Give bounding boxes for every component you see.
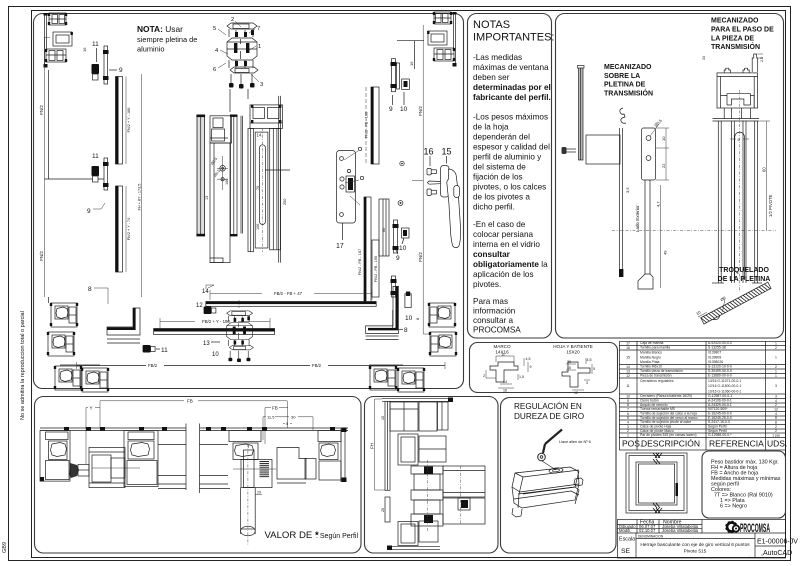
svg-text:33: 33: [702, 56, 706, 60]
svg-text:-En el caso de: -En el caso de: [473, 220, 526, 229]
svg-text:70: 70: [256, 186, 260, 190]
svg-text:10: 10: [400, 106, 408, 113]
svg-text:aplicación de los: aplicación de los: [473, 270, 534, 279]
svg-text:250: 250: [283, 199, 287, 205]
svg-text:12: 12: [196, 303, 203, 309]
svg-text:-Las medidas: -Las medidas: [473, 53, 522, 62]
svg-text:17: 17: [626, 341, 630, 345]
svg-text:PLETINA DE: PLETINA DE: [604, 82, 646, 89]
svg-text:-Los pesos máximos: -Los pesos máximos: [473, 113, 548, 122]
svg-text:PROCOMSA: PROCOMSA: [740, 523, 770, 535]
svg-text:3: 3: [775, 384, 777, 388]
svg-text:11: 11: [501, 353, 505, 357]
svg-text:UDS.: UDS.: [767, 439, 787, 449]
svg-text:deben ser: deben ser: [473, 73, 510, 82]
svg-text:10: 10: [661, 136, 666, 141]
svg-text:DE LA PLETINA: DE LA PLETINA: [718, 276, 771, 283]
svg-text:9: 9: [87, 208, 91, 215]
svg-text:Modifi.: Modifi.: [619, 528, 631, 533]
svg-text:2: 2: [775, 346, 777, 350]
svg-text:S-13255-38: S-13255-38: [708, 346, 726, 350]
svg-text:FN/2 + Y - 74: FN/2 + Y - 74: [127, 218, 131, 241]
svg-text:Manilla Plata: Manilla Plata: [640, 360, 660, 364]
svg-text:8: 8: [775, 420, 777, 424]
svg-text:,AutoCAD: ,AutoCAD: [761, 550, 792, 557]
svg-text:11: 11: [92, 153, 99, 160]
svg-text:11: 11: [626, 384, 630, 388]
svg-text:REGULACIÓN EN: REGULACIÓN EN: [514, 401, 582, 411]
svg-text:007120-500*: 007120-500*: [708, 407, 728, 411]
svg-text:1: 1: [775, 355, 777, 359]
svg-text:Para mas: Para mas: [473, 297, 508, 306]
svg-text:determinadas por el: determinadas por el: [473, 83, 551, 92]
svg-text:.: .: [749, 552, 750, 557]
svg-text:dependerán del: dependerán del: [473, 133, 530, 142]
svg-text:15: 15: [567, 366, 571, 370]
svg-text:Manilla Negro: Manilla Negro: [640, 355, 661, 359]
svg-text:de la hoja: de la hoja: [473, 123, 509, 132]
svg-text:POS.: POS.: [622, 439, 642, 449]
svg-text:2: 2: [775, 365, 777, 369]
svg-text:15: 15: [442, 147, 452, 157]
svg-text:2,5: 2,5: [760, 57, 764, 62]
svg-text:49: 49: [663, 250, 668, 255]
svg-text:Lado Exterior: Lado Exterior: [635, 205, 640, 232]
svg-text:0139807: 0139807: [708, 351, 721, 355]
svg-text:3: 3: [586, 381, 588, 385]
svg-text:Cerradero (Ranura batiente 16/: Cerradero (Ranura batiente 16/20): [640, 394, 692, 398]
svg-text:4,5: 4,5: [587, 358, 592, 362]
svg-text:6: 6: [213, 67, 216, 73]
svg-text:13: 13: [205, 196, 209, 200]
svg-text:2: 2: [483, 374, 485, 378]
svg-text:10: 10: [399, 245, 407, 252]
svg-text:pivotes.: pivotes.: [473, 280, 501, 289]
svg-text:del sistema de: del sistema de: [473, 163, 526, 172]
svg-text:MECANIZADO: MECANIZADO: [604, 64, 652, 71]
svg-text:8: 8: [88, 286, 92, 293]
svg-text:9: 9: [119, 67, 123, 74]
svg-text:60: 60: [382, 228, 386, 232]
svg-text:DUREZA DE GIRO: DUREZA DE GIRO: [514, 412, 584, 421]
svg-text:2: 2: [231, 17, 234, 23]
svg-text:14: 14: [257, 133, 262, 138]
svg-text:29: 29: [257, 491, 261, 495]
svg-text:10: 10: [626, 394, 630, 398]
svg-text:FB/2: FB/2: [312, 363, 322, 368]
svg-text:obligatoriamente la: obligatoriamente la: [473, 260, 548, 269]
svg-text:SOBRE LA: SOBRE LA: [604, 73, 640, 80]
svg-text:MARCO: MARCO: [493, 344, 511, 349]
svg-text:10: 10: [405, 315, 413, 322]
svg-text:interna en el vidrio: interna en el vidrio: [473, 240, 540, 249]
svg-text:16: 16: [82, 47, 87, 52]
svg-text:14/16 G-11071-00-0-1: 14/16 G-11071-00-0-1: [708, 379, 741, 383]
svg-text:FB/2: FB/2: [148, 363, 158, 368]
svg-text:5: 5: [593, 367, 595, 371]
svg-text:6 => Negro: 6 => Negro: [720, 504, 747, 510]
svg-text:12: 12: [626, 374, 630, 378]
svg-text:siempre pletina de: siempre pletina de: [137, 35, 197, 44]
svg-text:60: 60: [761, 167, 766, 172]
svg-text:Herraje basculante con eje de: Herraje basculante con eje de giro verti…: [640, 542, 750, 548]
svg-text:15: 15: [381, 416, 385, 420]
svg-text:Llave allen de Nº 6: Llave allen de Nº 6: [559, 440, 591, 444]
svg-text:: Según Perfil: : Según Perfil: [316, 533, 358, 540]
svg-text:pivotes, o los calces: pivotes, o los calces: [473, 183, 546, 192]
svg-text:3: 3: [260, 82, 263, 88]
svg-text:fijación de los: fijación de los: [473, 173, 523, 182]
svg-text:G-12988-00-0-*: G-12988-00-0-*: [708, 433, 732, 437]
svg-text:FN/2 - FB - 166: FN/2 - FB - 166: [365, 112, 369, 138]
svg-text:22: 22: [661, 163, 666, 168]
svg-text:14: 14: [202, 289, 209, 295]
svg-text:16: 16: [503, 389, 507, 393]
svg-text:SE: SE: [621, 548, 631, 555]
svg-text:FH + 8Y - 173,5: FH + 8Y - 173,5: [138, 184, 142, 211]
svg-text:No se admitira la reproduccion: No se admitira la reproduccion total o p…: [20, 311, 26, 420]
svg-text:A-92420-00-0-0: A-92420-00-0-0: [708, 341, 732, 345]
svg-text:fabricante del perfil.: fabricante del perfil.: [473, 93, 551, 102]
svg-text:NOTA: Usar: NOTA: Usar: [137, 24, 183, 34]
svg-text:TRANSMISIÓN: TRANSMISIÓN: [604, 88, 653, 97]
svg-text:máximas de ventana: máximas de ventana: [473, 63, 549, 72]
svg-text:10: 10: [212, 352, 219, 358]
svg-text:S-13120-10-0-0: S-13120-10-0-0: [708, 365, 732, 369]
svg-text:colocar persiana: colocar persiana: [473, 230, 534, 239]
svg-text:5: 5: [213, 26, 216, 32]
svg-text:20: 20: [381, 508, 385, 512]
svg-text:LA PIEZA DE: LA PIEZA DE: [711, 35, 754, 42]
svg-text:1: 1: [627, 433, 629, 437]
svg-text:1 par: 1 par: [772, 433, 781, 437]
svg-text:12/16 G-11800-00-0-1: 12/16 G-11800-00-0-1: [708, 384, 741, 388]
svg-text:FB: FB: [187, 399, 193, 404]
svg-text:106: 106: [225, 179, 229, 185]
svg-text:perfil de aluminio y: perfil de aluminio y: [473, 153, 542, 162]
svg-text:20: 20: [567, 360, 571, 364]
svg-text:9: 9: [389, 106, 393, 113]
svg-text:16: 16: [424, 147, 434, 157]
svg-text:dicho perfil.: dicho perfil.: [473, 203, 515, 212]
svg-text:S-2417-16-0-0: S-2417-16-0-0: [708, 420, 730, 424]
svg-text:1: 1: [258, 44, 261, 50]
svg-text:Y: Y: [90, 405, 93, 410]
svg-text:Caja de manilla: Caja de manilla: [640, 341, 663, 345]
svg-text:espesor y calidad del: espesor y calidad del: [473, 143, 550, 152]
svg-text:15: 15: [626, 355, 630, 359]
svg-text:Pivote 515: Pivote 515: [684, 549, 707, 555]
svg-text:10/16 G-11060-00-0-1: 10/16 G-11060-00-0-1: [708, 390, 741, 394]
svg-text:1: 1: [775, 369, 777, 373]
svg-text:Tornillo de sujeción pivote al: Tornillo de sujeción pivote al calce: [640, 420, 691, 424]
svg-text:HOJA Y BATIENTE: HOJA Y BATIENTE: [553, 344, 593, 349]
svg-text:FN/2 - FB - 167: FN/2 - FB - 167: [358, 249, 362, 275]
svg-text:8: 8: [404, 327, 408, 334]
svg-text:4,5: 4,5: [526, 357, 531, 361]
svg-text:PROCOMSA: PROCOMSA: [473, 326, 521, 335]
svg-text:FB: FB: [272, 405, 278, 410]
svg-text:Tuerca remachable M5: Tuerca remachable M5: [640, 407, 675, 411]
svg-text:16: 16: [409, 61, 414, 66]
svg-text:TRANSMISIÓN: TRANSMISIÓN: [711, 42, 760, 51]
svg-text:aluminio: aluminio: [137, 45, 165, 54]
svg-text:9: 9: [738, 138, 740, 142]
svg-text:PARA EL PASO DE: PARA EL PASO DE: [711, 26, 774, 33]
svg-text:Manilla Blanco: Manilla Blanco: [640, 351, 662, 355]
svg-text:9: 9: [530, 365, 532, 369]
svg-text:17: 17: [336, 243, 344, 250]
svg-text:30: 30: [291, 414, 296, 419]
svg-text:1/2 PIVOTE: 1/2 PIVOTE: [768, 194, 773, 217]
svg-text:11: 11: [161, 347, 168, 354]
svg-text:REFERENCIA: REFERENCIA: [709, 439, 764, 449]
svg-text:13: 13: [203, 341, 210, 347]
svg-text:información: información: [473, 307, 516, 316]
svg-text:02.10.07: 02.10.07: [639, 528, 656, 533]
svg-text:3: 3: [775, 394, 777, 398]
svg-text:1: 1: [775, 374, 777, 378]
svg-text:VALOR DE *: VALOR DE *: [265, 530, 319, 541]
svg-text:Par de pivotes 515 (en camas./: Par de pivotes 515 (en camas./acero): [640, 433, 697, 437]
svg-text:14: 14: [626, 365, 630, 369]
svg-text:MECANIZADO: MECANIZADO: [711, 18, 759, 25]
svg-text:IMPORTANTES:: IMPORTANTES:: [473, 32, 555, 44]
svg-text:DENOMINACION: DENOMINACION: [638, 535, 664, 539]
svg-text:3,5: 3,5: [625, 187, 630, 193]
svg-text:14: 14: [503, 380, 507, 384]
svg-text:E-13889-00-0-0: E-13889-00-0-0: [708, 374, 732, 378]
svg-text:11,5: 11,5: [267, 414, 275, 419]
svg-text:11: 11: [92, 41, 99, 48]
svg-text:S-30459-00-0-0: S-30459-00-0-0: [708, 369, 732, 373]
svg-text:FN/2: FN/2: [39, 251, 44, 261]
svg-text:Cerraderos regulables: Cerraderos regulables: [640, 379, 674, 383]
svg-text:Joseba Villatabeitia: Joseba Villatabeitia: [662, 528, 699, 533]
svg-text:4,7: 4,7: [656, 201, 661, 207]
svg-text:Tornillo M6x10: Tornillo M6x10: [640, 365, 662, 369]
svg-text:consultar: consultar: [473, 250, 511, 259]
svg-text:7: 7: [257, 26, 260, 32]
svg-text:12: 12: [574, 391, 578, 395]
svg-text:106: 106: [256, 224, 260, 230]
svg-text:Tornillo pieza de transmisión: Tornillo pieza de transmisión: [640, 369, 683, 373]
svg-text:0139808: 0139808: [708, 355, 721, 359]
svg-text:de los pivotes a: de los pivotes a: [473, 193, 530, 202]
svg-text:DESCRIPCIÓN: DESCRIPCIÓN: [641, 439, 700, 449]
svg-text:FN/2 - FB - 190: FN/2 - FB - 190: [374, 256, 378, 282]
svg-text:7: 7: [627, 407, 629, 411]
svg-text:1,5: 1,5: [519, 375, 524, 379]
svg-text:1: 1: [775, 341, 777, 345]
svg-text:FB/2 + Y - 190: FB/2 + Y - 190: [202, 319, 230, 324]
svg-text:FN/2: FN/2: [39, 105, 44, 115]
svg-text:G-12987-00-0-1: G-12987-00-0-1: [708, 394, 732, 398]
svg-text:12: 12: [774, 407, 778, 411]
svg-text:15X20: 15X20: [566, 350, 580, 355]
svg-text:FB/2 - FB + 47: FB/2 - FB + 47: [274, 291, 303, 296]
svg-text:4: 4: [627, 420, 629, 424]
svg-text:E1-00006-JV: E1-00006-JV: [757, 539, 798, 546]
svg-text:Escala: Escala: [619, 537, 635, 543]
svg-text:FN/2 + Y - 166: FN/2 + Y - 166: [127, 108, 131, 133]
svg-text:consultar a: consultar a: [473, 316, 513, 325]
svg-text:Tornillo para manilla: Tornillo para manilla: [640, 346, 670, 350]
svg-text:FN/2: FN/2: [418, 252, 423, 262]
svg-text:13: 13: [626, 369, 630, 373]
svg-text:Pieza de transmisión: Pieza de transmisión: [640, 374, 672, 378]
svg-text:FN/2: FN/2: [418, 106, 423, 116]
svg-text:01398026: 01398026: [708, 360, 723, 364]
svg-text:GB9: GB9: [2, 542, 8, 553]
svg-text:FH: FH: [370, 443, 375, 449]
svg-text:16: 16: [626, 346, 630, 350]
svg-text:9: 9: [396, 255, 400, 262]
svg-text:NOTAS: NOTAS: [473, 19, 510, 31]
